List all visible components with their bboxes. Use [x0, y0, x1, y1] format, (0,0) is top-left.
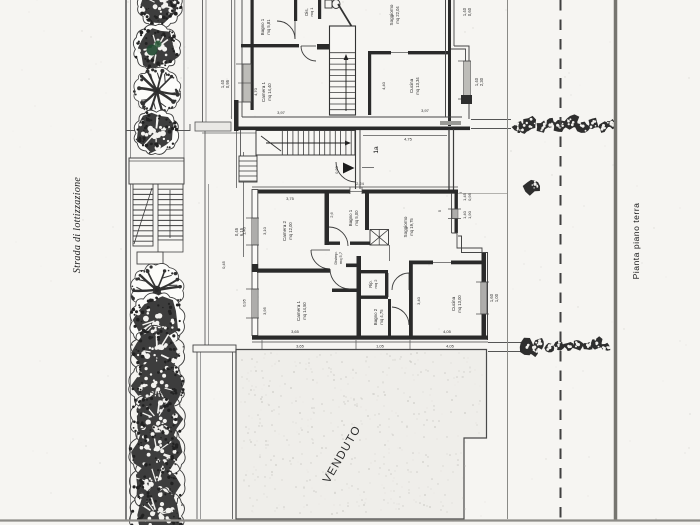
svg-text:3,40: 3,40 [416, 296, 421, 305]
svg-text:mq 13,00: mq 13,00 [457, 295, 462, 313]
svg-text:Camera 2: Camera 2 [282, 220, 287, 241]
svg-text:4,05: 4,05 [446, 344, 455, 349]
svg-text:3,97: 3,97 [277, 110, 286, 115]
svg-text:3,75: 3,75 [286, 196, 295, 201]
svg-text:0,95: 0,95 [225, 79, 230, 88]
svg-text:4,40: 4,40 [381, 81, 386, 90]
svg-text:0,95: 0,95 [242, 298, 247, 307]
svg-text:1,05: 1,05 [376, 344, 385, 349]
svg-text:mq 22,04: mq 22,04 [395, 6, 400, 24]
svg-text:3,97: 3,97 [421, 108, 430, 113]
svg-text:Bagno 1: Bagno 1 [348, 209, 353, 226]
svg-text:Cucina: Cucina [451, 296, 456, 311]
svg-text:Cucina: Cucina [409, 78, 414, 93]
svg-text:4,75: 4,75 [404, 137, 413, 142]
svg-text:2,24: 2,24 [356, 181, 365, 186]
svg-text:2,6: 2,6 [329, 211, 334, 217]
svg-text:0,95: 0,95 [467, 192, 472, 201]
svg-text:mq 13,34: mq 13,34 [415, 77, 420, 95]
svg-text:mq 1: mq 1 [309, 7, 314, 17]
svg-text:mq 4,75: mq 4,75 [379, 309, 384, 325]
svg-text:mq 5,7: mq 5,7 [338, 251, 343, 264]
svg-text:3,10: 3,10 [262, 226, 267, 235]
svg-text:2,30: 2,30 [479, 77, 484, 86]
svg-text:Strada di lottizzazione: Strada di lottizzazione [72, 177, 83, 274]
svg-text:mq 5,00: mq 5,00 [354, 210, 359, 226]
svg-text:3,95: 3,95 [262, 306, 267, 315]
svg-text:4,05: 4,05 [443, 329, 452, 334]
svg-text:mq 5,81: mq 5,81 [266, 19, 271, 35]
svg-text:0,45: 0,45 [221, 260, 226, 269]
svg-text:6,15: 6,15 [239, 227, 244, 236]
svg-text:Bagno 2: Bagno 2 [373, 308, 378, 325]
svg-text:0,90: 0,90 [335, 166, 339, 173]
svg-text:Camera 1: Camera 1 [296, 300, 301, 321]
svg-text:1a: 1a [373, 146, 380, 154]
svg-text:Soggiorno: Soggiorno [403, 216, 408, 237]
svg-text:mq 14,40: mq 14,40 [267, 83, 272, 101]
svg-text:mq 12,00: mq 12,00 [288, 222, 293, 240]
svg-text:Bagno 1: Bagno 1 [260, 18, 265, 35]
svg-text:0,60: 0,60 [467, 7, 472, 16]
svg-text:Soggiorno: Soggiorno [389, 4, 394, 25]
svg-text:1,90: 1,90 [467, 210, 472, 219]
svg-text:3,65: 3,65 [296, 344, 305, 349]
svg-text:Pianta piano terra: Pianta piano terra [631, 203, 641, 280]
svg-text:3,65: 3,65 [291, 329, 300, 334]
svg-text:mq 14,50: mq 14,50 [302, 302, 307, 320]
svg-text:mq 19,75: mq 19,75 [409, 218, 414, 236]
svg-text:Camera 1: Camera 1 [261, 81, 266, 102]
svg-text:mq 2: mq 2 [373, 279, 378, 289]
svg-text:1,00: 1,00 [494, 293, 499, 302]
svg-text:4,70: 4,70 [253, 87, 258, 96]
